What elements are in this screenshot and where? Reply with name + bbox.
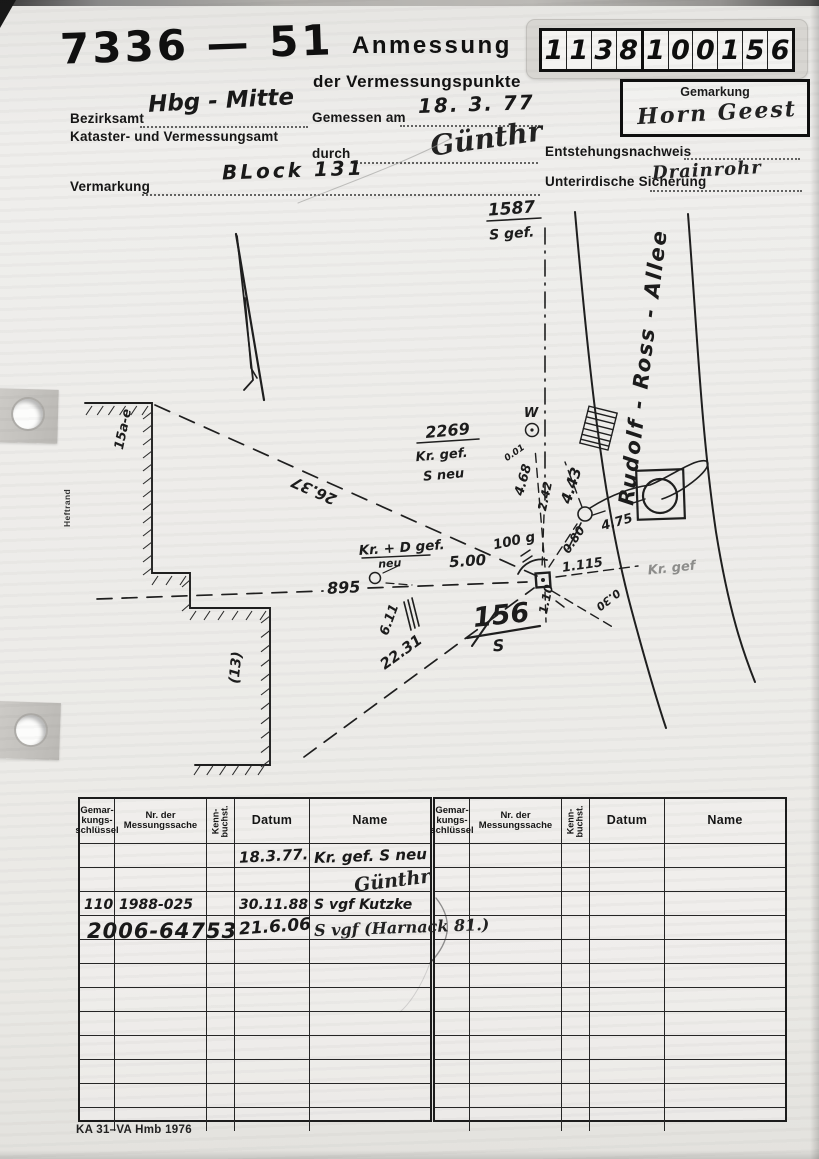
table-row [80, 1011, 430, 1035]
measurement-table-right: Gemar- kungs- schlüsselNr. der Messungss… [433, 797, 787, 1122]
table-cell [470, 1036, 562, 1059]
table-cell [115, 988, 207, 1011]
table-cell [470, 940, 562, 963]
boundary-dash-dot-line [542, 228, 545, 568]
table-row: Günthr [80, 867, 430, 891]
table-row [435, 867, 785, 891]
sketch-label: S gef. [489, 224, 535, 243]
table-cell: 21.6.06 [235, 916, 310, 939]
table-cell: 30.11.88 [235, 892, 310, 915]
table-cell: S vgf (Harnack 81.) [310, 916, 430, 939]
table-cell [562, 1084, 590, 1107]
table-header-cell: Datum [235, 799, 310, 843]
sketch-label: Kr. + D gef. [358, 537, 445, 559]
table-cell [235, 1108, 310, 1131]
table-cell [590, 1060, 665, 1083]
measurement-table-left: Gemar- kungs- schlüsselNr. der Messungss… [78, 797, 432, 1122]
table-cell: 110 [80, 892, 115, 915]
table-cell [235, 1060, 310, 1083]
table-cell [562, 940, 590, 963]
table-cell [207, 844, 235, 867]
table-row [80, 987, 430, 1011]
sketch-label: S neu [423, 466, 465, 485]
table-entry: S vgf Kutzke [314, 897, 412, 913]
table-cell [115, 1084, 207, 1107]
table-header-cell: Kenn- buchst. [207, 799, 235, 843]
table-cell [435, 892, 470, 915]
sketch-label: 0.80 [560, 524, 588, 556]
sketch-label: 0.30 [593, 586, 623, 613]
manhole-symbol [636, 469, 685, 520]
table-cell [435, 844, 470, 867]
table-row: 1101988-02530.11.88S vgf Kutzke [80, 891, 430, 915]
table-cell [80, 964, 115, 987]
dashed-measure-lines [97, 405, 537, 757]
sketch-label: (13) [226, 651, 245, 685]
table-cell [470, 1108, 562, 1131]
table-row [435, 987, 785, 1011]
table-cell [470, 868, 562, 891]
scanned-form-page: Heftrand 7336 — 51 Anmessung der Vermess… [0, 0, 819, 1159]
sketch-label: S [492, 636, 505, 656]
table-cell [80, 1084, 115, 1107]
table-cell [435, 1060, 470, 1083]
table-header-cell: Gemar- kungs- schlüssel [435, 799, 470, 843]
sketch-label: Kr. gef. [415, 446, 468, 465]
table-cell [590, 1012, 665, 1035]
table-cell [470, 988, 562, 1011]
table-cell [235, 964, 310, 987]
table-cell [207, 1084, 235, 1107]
table-cell [310, 940, 430, 963]
table-cell [665, 1060, 785, 1083]
table-cell [470, 964, 562, 987]
sketch-label: 4.75 [599, 511, 635, 535]
table-cell [310, 1060, 430, 1083]
table-row [80, 1035, 430, 1059]
form-code: KA 31–VA Hmb 1976 [76, 1124, 192, 1136]
sketch-label: 4.68 [512, 463, 536, 499]
table-entry: 1988-025 [119, 897, 193, 913]
table-cell [435, 1036, 470, 1059]
table-row [80, 1059, 430, 1083]
table-cell [590, 1036, 665, 1059]
table-cell [435, 1012, 470, 1035]
sketch-label: 5.00 [449, 551, 487, 572]
table-row [80, 1083, 430, 1107]
table-cell: S vgf Kutzke [310, 892, 430, 915]
table-row [435, 963, 785, 987]
table-cell [590, 892, 665, 915]
table-cell: Kr. gef. S neu [310, 844, 430, 867]
table-header-cell: Gemar- kungs- schlüssel [80, 799, 115, 843]
table-cell [115, 844, 207, 867]
table-row [435, 1059, 785, 1083]
table-cell [562, 1012, 590, 1035]
table-cell [562, 1108, 590, 1131]
table-row [435, 1107, 785, 1131]
table-entry: 21.6.06 [238, 915, 311, 940]
table-entry: 30.11.88 [239, 897, 308, 913]
table-row [435, 1035, 785, 1059]
table-cell: 2006-64753 [115, 916, 207, 939]
table-entry: 110 [84, 897, 113, 913]
table-cell: Günthr [310, 868, 430, 891]
table-cell [207, 1036, 235, 1059]
table-cell [665, 892, 785, 915]
table-cell [590, 1084, 665, 1107]
table-cell [207, 868, 235, 891]
table-cell [80, 844, 115, 867]
table-cell [590, 1108, 665, 1131]
table-row [80, 963, 430, 987]
table-cell [562, 868, 590, 891]
table-cell [207, 964, 235, 987]
table-cell [115, 1036, 207, 1059]
table-row [435, 1011, 785, 1035]
table-header-cell: Datum [590, 799, 665, 843]
table-header-cell: Nr. der Messungssache [470, 799, 562, 843]
table-cell [310, 1084, 430, 1107]
table-cell [235, 940, 310, 963]
north-arrow-icon [236, 234, 264, 400]
table-cell [115, 868, 207, 891]
table-cell [435, 964, 470, 987]
table-cell [665, 988, 785, 1011]
table-header-cell: Name [665, 799, 785, 843]
building-hatching [86, 406, 270, 775]
table-row: 18.3.77.Kr. gef. S neu [80, 843, 430, 867]
table-entry: Kr. gef. S neu [314, 845, 427, 867]
table-row [435, 843, 785, 867]
sketch-label: 895 [327, 577, 361, 598]
steps-symbol [580, 406, 617, 450]
table-header-cell: Name [310, 799, 430, 843]
table-cell [235, 1036, 310, 1059]
table-cell [80, 988, 115, 1011]
stray-pencil-line [298, 138, 452, 203]
point-w-symbol [526, 424, 539, 437]
table-cell [115, 1060, 207, 1083]
table-cell [562, 1060, 590, 1083]
table-cell [310, 1036, 430, 1059]
sketch-label: 15a-e [112, 407, 135, 450]
central-point-symbol [518, 559, 550, 587]
sketch-label: 156 [471, 597, 530, 634]
table-cell [435, 1108, 470, 1131]
table-cell [80, 1060, 115, 1083]
table-cell [470, 892, 562, 915]
table-cell [207, 892, 235, 915]
table-cell [470, 1084, 562, 1107]
sketch-label: 0.01 [503, 443, 527, 464]
table-cell [562, 988, 590, 1011]
table-cell [235, 868, 310, 891]
table-cell [115, 940, 207, 963]
table-cell [665, 868, 785, 891]
table-row [435, 939, 785, 963]
table-cell [665, 916, 785, 939]
table-row: 2006-6475321.6.06S vgf (Harnack 81.) [80, 915, 430, 939]
table-entry: 2006-64753 [87, 919, 237, 943]
table-cell [665, 940, 785, 963]
table-cell [115, 1012, 207, 1035]
table-cell [665, 964, 785, 987]
table-cell [80, 1012, 115, 1035]
table-cell [590, 964, 665, 987]
sketch-label: 4.43 [557, 465, 586, 507]
table-cell [80, 1036, 115, 1059]
table-header-cell: Nr. der Messungssache [115, 799, 207, 843]
table-row [435, 891, 785, 915]
table-cell [235, 988, 310, 1011]
table-cell [435, 988, 470, 1011]
table-cell [310, 964, 430, 987]
sketch-label: 1587 [487, 197, 536, 220]
table-cell [435, 940, 470, 963]
table-header-cell: Kenn- buchst. [562, 799, 590, 843]
table-cell [207, 1060, 235, 1083]
table-cell [562, 1036, 590, 1059]
table-cell [665, 1084, 785, 1107]
sketch-label: neu [378, 556, 402, 571]
table-cell [590, 916, 665, 939]
table-cell [435, 1084, 470, 1107]
table-cell [80, 868, 115, 891]
table-cell [235, 1012, 310, 1035]
table-cell [562, 892, 590, 915]
table-cell [207, 988, 235, 1011]
table-cell [235, 1084, 310, 1107]
sketch-label: 6.11 [377, 602, 402, 637]
table-cell [310, 988, 430, 1011]
table-cell [562, 844, 590, 867]
table-cell [562, 964, 590, 987]
table-cell: 1988-025 [115, 892, 207, 915]
table-cell [590, 988, 665, 1011]
table-cell [665, 844, 785, 867]
table-cell [310, 1108, 430, 1131]
table-cell [470, 844, 562, 867]
sketch-label: 26.37 [288, 472, 339, 508]
sketch-label: Kr. gef [647, 558, 699, 578]
table-entry: 18.3.77. [239, 845, 309, 867]
sketch-label: 2269 [425, 419, 471, 442]
table-cell [207, 940, 235, 963]
table-cell [665, 1108, 785, 1131]
table-cell [562, 916, 590, 939]
table-cell [590, 844, 665, 867]
table-cell [115, 964, 207, 987]
table-cell [665, 1012, 785, 1035]
found-point-symbol [578, 507, 592, 521]
table-cell [590, 940, 665, 963]
sketch-label: Rudolf - Ross - Allee [614, 228, 672, 507]
table-cell [310, 1012, 430, 1035]
table-cell [80, 940, 115, 963]
table-cell [665, 1036, 785, 1059]
table-cell [207, 1108, 235, 1131]
table-cell [470, 1060, 562, 1083]
table-cell [207, 1012, 235, 1035]
sketch-label: W [524, 406, 539, 421]
building-outline [85, 403, 270, 765]
table-row [435, 1083, 785, 1107]
table-cell: 18.3.77. [235, 844, 310, 867]
sketch-label: 1.115 [561, 555, 604, 576]
sketch-label: 22.31 [377, 631, 426, 673]
table-cell [435, 868, 470, 891]
table-cell [590, 868, 665, 891]
table-cell [470, 1012, 562, 1035]
